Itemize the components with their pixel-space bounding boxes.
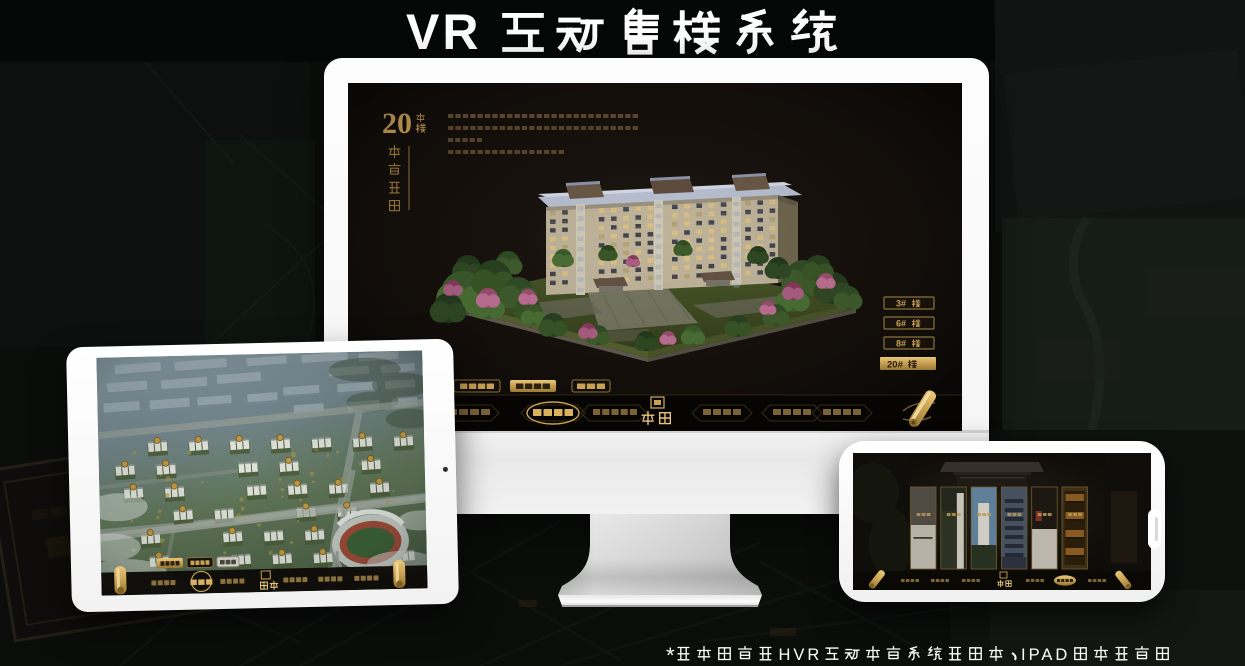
svg-text:VR: VR: [406, 4, 481, 60]
svg-text:IPAD: IPAD: [1021, 646, 1070, 664]
svg-text:20#: 20#: [887, 360, 904, 371]
svg-text:6#: 6#: [896, 319, 906, 329]
svg-text:HVR: HVR: [779, 646, 823, 664]
svg-text:8#: 8#: [896, 339, 906, 349]
svg-text:*: *: [666, 643, 675, 666]
svg-text:3#: 3#: [896, 299, 906, 309]
